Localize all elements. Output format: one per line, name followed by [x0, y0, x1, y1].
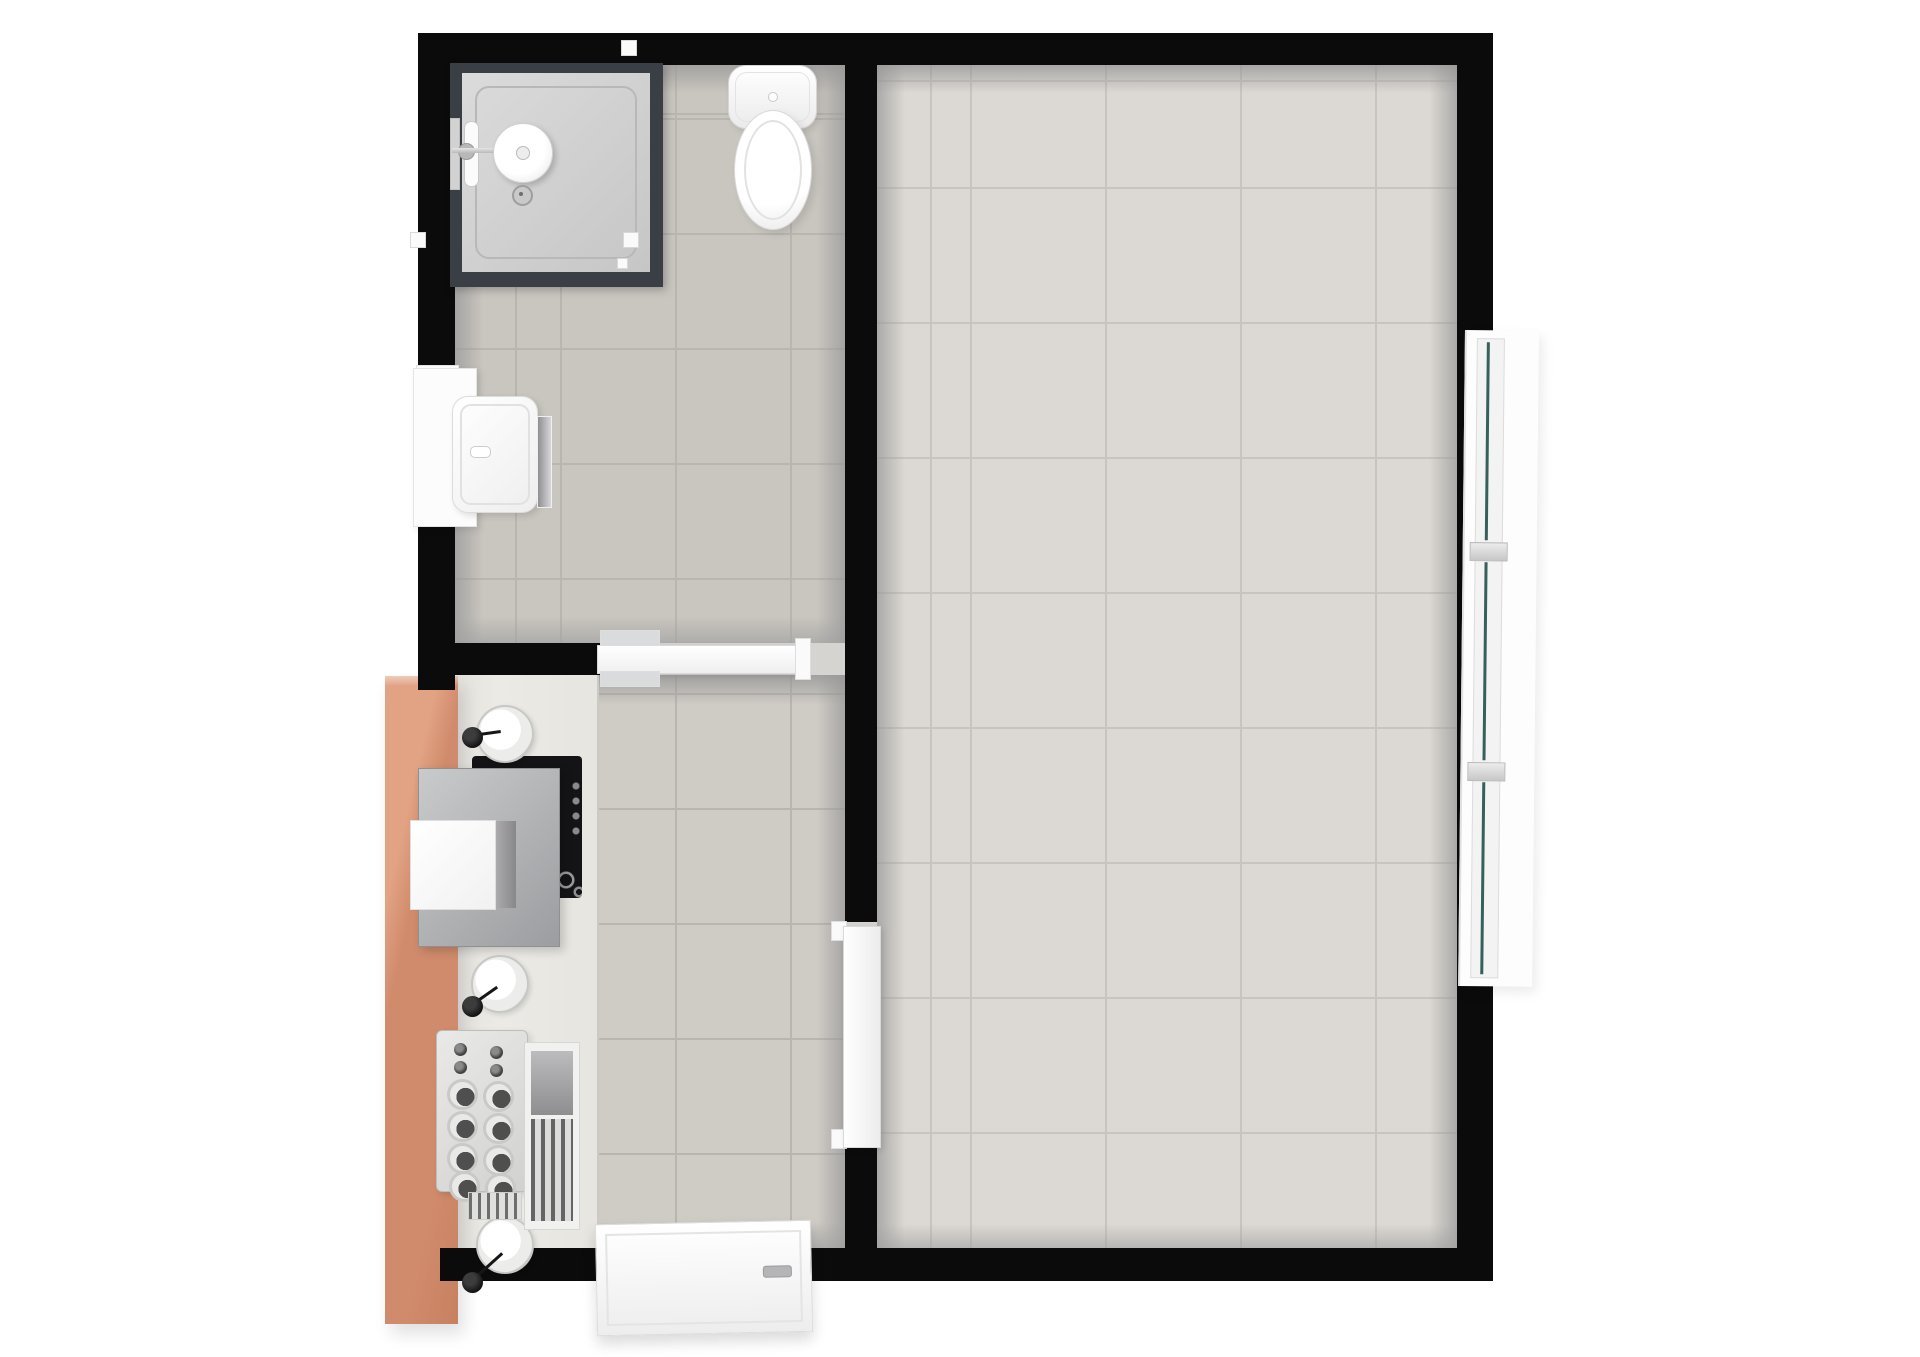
drainboard-ribs	[531, 1119, 573, 1221]
drip-tray	[468, 1192, 522, 1220]
living-room-floor	[877, 63, 1457, 1250]
glass-large	[447, 1079, 478, 1110]
extractor-hood-chimney	[410, 820, 496, 910]
glass-connector-left	[410, 232, 426, 248]
window-mullion-lower	[1467, 762, 1505, 781]
wall-top	[418, 33, 1493, 65]
bathroom-door-frame-top	[600, 630, 660, 646]
window-mullion-upper	[1470, 542, 1508, 561]
wall-bottom-right	[808, 1248, 1493, 1281]
toilet-bowl	[734, 110, 812, 230]
drainboard-sheet	[531, 1051, 573, 1115]
glass-small	[490, 1064, 503, 1077]
bathroom-door-leaf	[597, 645, 800, 674]
entrance-door-handle	[763, 1265, 792, 1278]
bathroom-door-frame-bottom	[600, 671, 660, 687]
dish-rack	[436, 1030, 528, 1192]
glass-large	[483, 1145, 514, 1176]
faucet-knob-3	[462, 1272, 483, 1293]
glass-small	[454, 1043, 467, 1056]
glass-large	[447, 1143, 478, 1174]
drainboard	[524, 1042, 580, 1230]
faucet-knob-2	[462, 996, 483, 1017]
shower-drain	[512, 185, 533, 206]
bathroom-door-jamb-right	[795, 638, 811, 680]
glass-connector-corner	[623, 232, 639, 248]
glass-large	[483, 1113, 514, 1144]
wall-interior-vertical-upper	[845, 63, 877, 922]
shower-tray	[462, 73, 650, 272]
glass-large	[447, 1111, 478, 1142]
shower-head	[493, 123, 553, 183]
shower-door-handle	[617, 258, 628, 269]
living-room-wall-faces	[877, 63, 1457, 1250]
extractor-hood-side-face	[494, 821, 516, 908]
mirror-shelf	[537, 416, 552, 508]
glass-large	[483, 1081, 514, 1112]
washbasin-overflow	[470, 446, 491, 458]
interior-door-leaf	[843, 926, 881, 1148]
glass-small	[454, 1061, 467, 1074]
faucet-knob-1	[462, 727, 483, 748]
glass-connector-top	[621, 40, 637, 56]
washbasin	[452, 396, 538, 513]
entrance-door-slab	[595, 1220, 813, 1336]
shower-cabin	[450, 63, 663, 287]
glass-small	[490, 1046, 503, 1059]
floor-plan-render	[0, 0, 1920, 1357]
open-casement-window	[1458, 330, 1539, 987]
